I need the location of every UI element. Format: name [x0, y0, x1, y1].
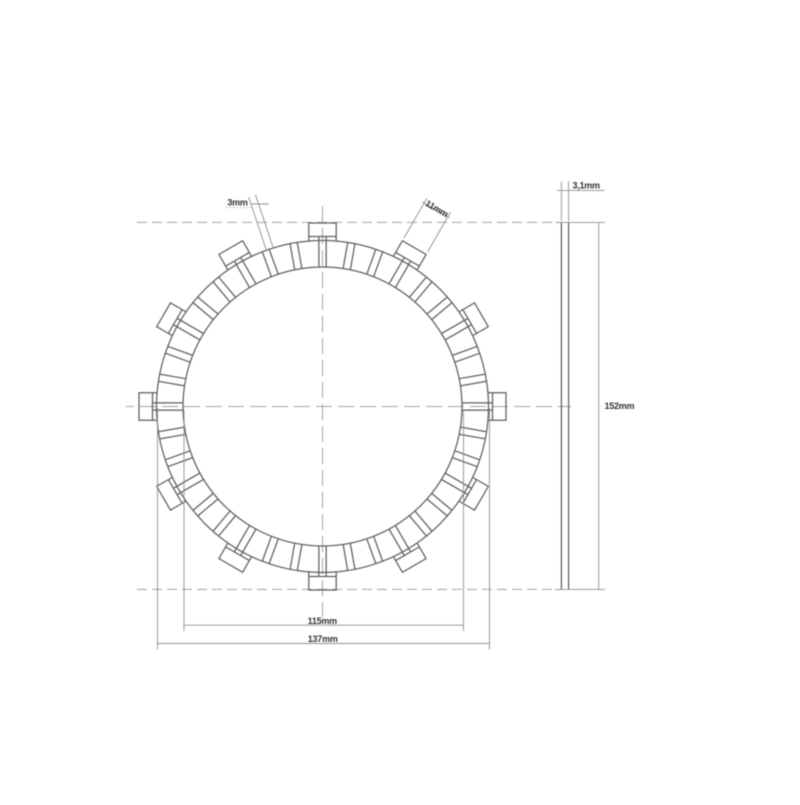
svg-text:3mm: 3mm [227, 198, 248, 208]
svg-text:115mm: 115mm [308, 616, 338, 626]
svg-text:152mm: 152mm [605, 401, 635, 411]
svg-text:3,1mm: 3,1mm [573, 181, 601, 191]
svg-text:137mm: 137mm [308, 634, 338, 644]
